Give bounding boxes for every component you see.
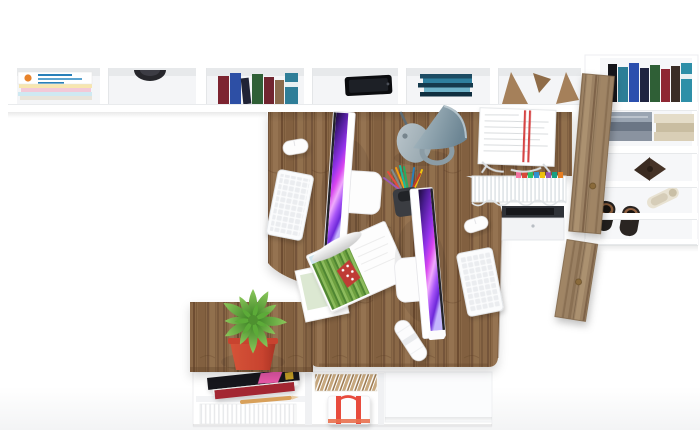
drawer-front (385, 372, 492, 422)
under-desk-pedestal (502, 206, 564, 240)
shelf-smartphone (345, 75, 393, 96)
shelf-floor-shadow (8, 112, 267, 118)
wardrobe-floor-shadow (585, 245, 698, 252)
shelf-flat-book-stack (418, 74, 473, 97)
magazine-logo (24, 74, 31, 81)
office-scene (0, 0, 700, 430)
tray-papers (478, 108, 556, 167)
wardrobe-book-label (681, 74, 692, 79)
plant-center (248, 315, 258, 325)
wall-shelf (8, 0, 597, 118)
render-canvas (0, 0, 700, 430)
file-folders (315, 374, 377, 391)
drawer-shadow (385, 417, 492, 422)
hanging-file-basket (472, 172, 566, 206)
equipment-slot (506, 208, 554, 215)
lower-vertical-divider (305, 373, 312, 425)
lower-vertical-divider-2 (378, 373, 384, 425)
lower-storage-unit (193, 368, 492, 428)
lower-door-handle (575, 278, 582, 285)
magazine-cover-mark (285, 372, 294, 380)
paper-files (200, 404, 296, 424)
shelf-magazine-stack (18, 72, 92, 100)
book-label (285, 82, 298, 87)
shelf-top-face (8, 0, 597, 70)
pedestal-handle (531, 224, 534, 227)
lower-unit-shadow (193, 424, 492, 428)
wardrobe-books-row (608, 63, 692, 102)
imac-right-foot (428, 330, 445, 340)
wardrobe-lower-door (555, 240, 598, 322)
wardrobe-folded-clothes (606, 112, 694, 141)
shelf-standing-books (218, 73, 298, 104)
lamp-base-hole (402, 133, 407, 138)
storage-box (328, 396, 370, 424)
box-trim (328, 419, 370, 423)
upper-door-handle (589, 183, 596, 190)
